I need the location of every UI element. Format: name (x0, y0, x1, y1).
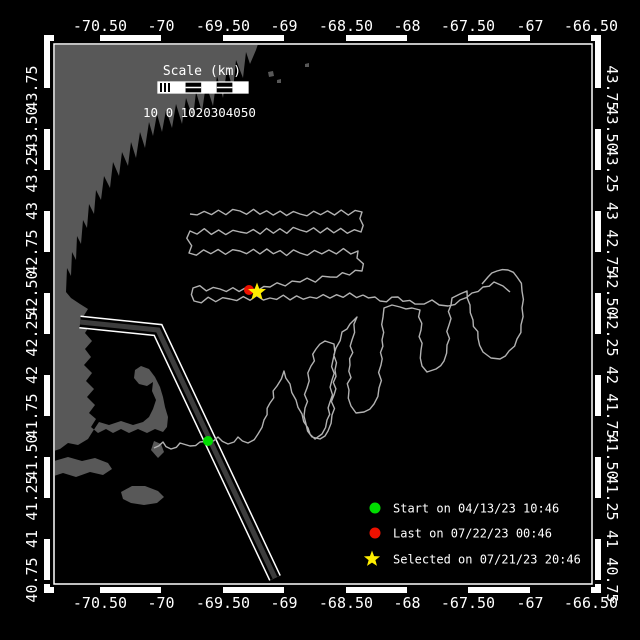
scalebar-numbers: 10 0 1020304050 (143, 105, 256, 120)
lon-tick-label-top: -68.50 (319, 17, 373, 35)
lat-tick-label-left: 41.25 (23, 475, 41, 520)
lon-tick-label-top: -70.50 (73, 17, 127, 35)
lon-tick-label-top: -67.50 (441, 17, 495, 35)
lat-tick-label-left: 41.50 (23, 434, 41, 479)
lat-tick-label-right: 43 (603, 202, 621, 220)
legend-item-label: Last on 07/22/23 00:46 (393, 527, 552, 541)
lat-tick-label-left: 42.75 (23, 229, 41, 274)
lat-tick-label-right: 43.25 (603, 147, 621, 192)
start-marker[interactable] (203, 436, 213, 446)
lon-tick-label-bottom: -70 (147, 594, 174, 612)
lon-tick-label-top: -69 (270, 17, 297, 35)
track-map-window: -70.50-70.50-70-70-69.50-69.50-69-69-68.… (0, 0, 640, 640)
lat-tick-label-left: 41.75 (23, 393, 41, 438)
lat-tick-label-right: 43.75 (603, 65, 621, 110)
lat-tick-label-left: 42 (23, 366, 41, 384)
lat-tick-label-left: 43 (23, 202, 41, 220)
legend-item-label: Selected on 07/21/23 20:46 (393, 553, 581, 567)
lon-tick-label-top: -67 (516, 17, 543, 35)
lon-tick-label-bottom: -70.50 (73, 594, 127, 612)
legend-item: Selected on 07/21/23 20:46 (364, 551, 581, 567)
lat-tick-label-left: 42.25 (23, 311, 41, 356)
scalebar-bar (158, 82, 248, 93)
lon-tick-label-bottom: -67 (516, 594, 543, 612)
lon-tick-label-top: -66.50 (564, 17, 618, 35)
lat-tick-label-right: 41.50 (603, 434, 621, 479)
landmass (268, 71, 274, 77)
lon-tick-label-top: -70 (147, 17, 174, 35)
lat-tick-label-right: 41.75 (603, 393, 621, 438)
lon-tick-label-bottom: -68 (393, 594, 420, 612)
lat-tick-label-right: 41 (603, 530, 621, 548)
lon-tick-label-bottom: -67.50 (441, 594, 495, 612)
lat-tick-label-right: 43.50 (603, 106, 621, 151)
legend-item: Last on 07/22/23 00:46 (370, 527, 552, 541)
lat-tick-label-left: 43.50 (23, 106, 41, 151)
lat-tick-label-right: 42.75 (603, 229, 621, 274)
lat-tick-label-right: 40.75 (603, 557, 621, 602)
lon-tick-label-top: -68 (393, 17, 420, 35)
legend: Start on 04/13/23 10:46Last on 07/22/23 … (364, 502, 581, 567)
legend-item: Start on 04/13/23 10:46 (370, 502, 560, 516)
lat-tick-label-right: 42 (603, 366, 621, 384)
legend-start-dot-icon (370, 503, 381, 514)
lat-tick-label-left: 43.25 (23, 147, 41, 192)
lat-tick-label-right: 41.25 (603, 475, 621, 520)
lon-tick-label-top: -69.50 (196, 17, 250, 35)
map-canvas[interactable]: -70.50-70.50-70-70-69.50-69.50-69-69-68.… (0, 0, 640, 640)
lat-tick-label-left: 42.50 (23, 270, 41, 315)
lon-tick-label-bottom: -68.50 (319, 594, 373, 612)
scalebar-title: Scale (km) (163, 64, 241, 79)
lat-tick-label-right: 42.50 (603, 270, 621, 315)
lat-tick-label-left: 41 (23, 530, 41, 548)
legend-item-label: Start on 04/13/23 10:46 (393, 502, 559, 516)
lat-tick-label-left: 40.75 (23, 557, 41, 602)
lat-tick-label-left: 43.75 (23, 65, 41, 110)
lon-tick-label-bottom: -69 (270, 594, 297, 612)
legend-last-dot-icon (370, 528, 381, 539)
lon-tick-label-bottom: -69.50 (196, 594, 250, 612)
lat-tick-label-right: 42.25 (603, 311, 621, 356)
